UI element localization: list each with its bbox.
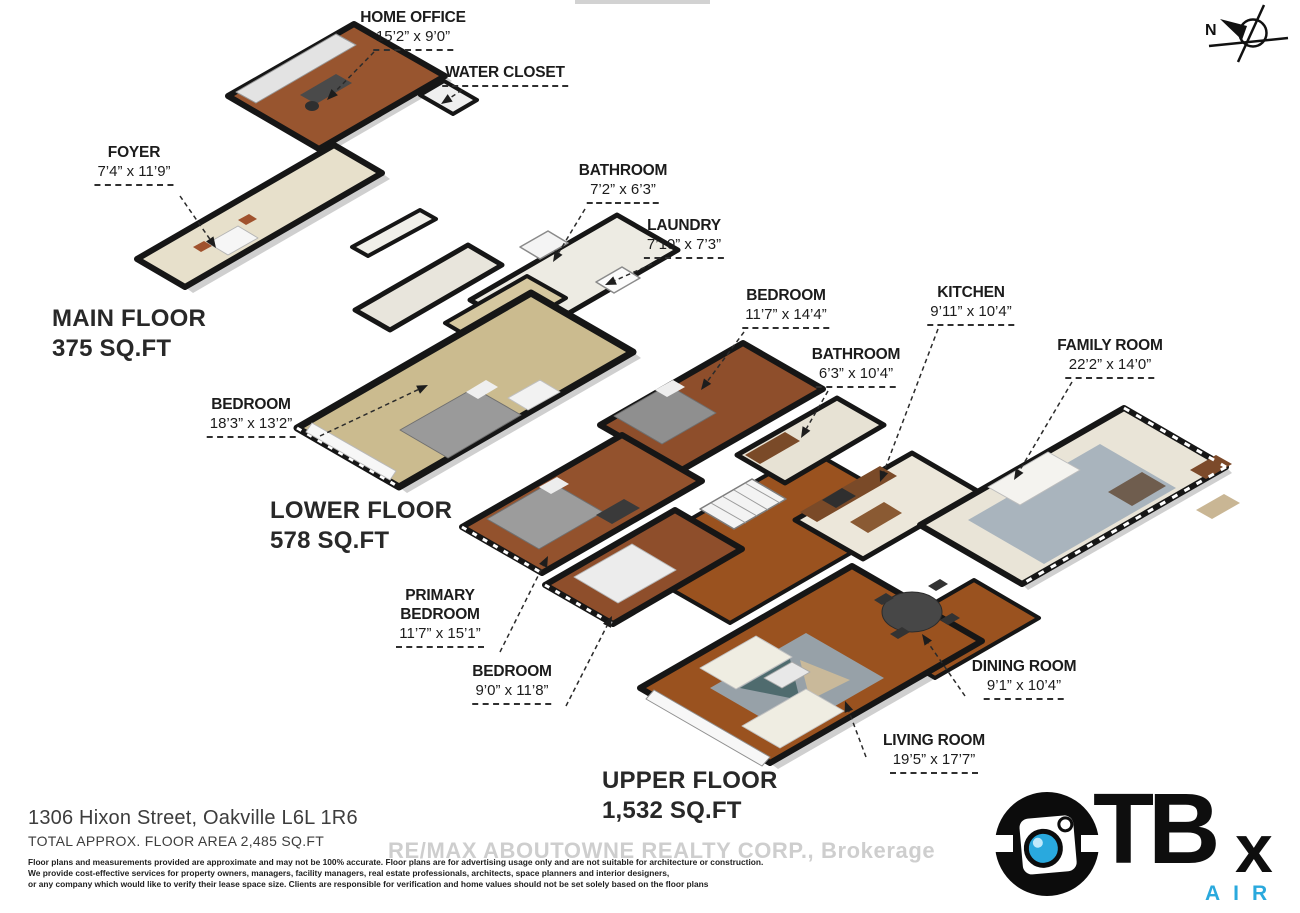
- room-label-water-closet: WATER CLOSET: [442, 63, 568, 87]
- room-dims-bathroom-lower: 7’2” x 6’3”: [587, 180, 659, 204]
- tbx-air-logo: TB x AIR: [993, 790, 1299, 910]
- foyer-room: [137, 145, 382, 287]
- room-name-laundry: LAUNDRY: [644, 216, 724, 235]
- property-address: 1306 Hixon Street, Oakville L6L 1R6: [28, 806, 763, 830]
- room-dims-dining-room: 9’1” x 10’4”: [984, 676, 1064, 700]
- room-dims-bedroom-lower: 18’3” x 13’2”: [207, 414, 296, 438]
- dining-chair-2: [928, 579, 948, 591]
- family-lounger: [1196, 494, 1240, 519]
- floorplan-page: MAIN FLOOR 375 SQ.FT LOWER FLOOR 578 SQ.…: [0, 0, 1300, 913]
- disclaimer-line-2: We provide cost-effective services for p…: [28, 868, 763, 879]
- logo-text-air: AIR: [1205, 882, 1280, 906]
- room-name-foyer: FOYER: [94, 143, 173, 162]
- room-dims-kitchen: 9’11” x 10’4”: [927, 302, 1014, 326]
- room-dims-home-office: 15’2” x 9’0”: [373, 27, 453, 51]
- room-label-home-office: HOME OFFICE15’2” x 9’0”: [360, 8, 465, 51]
- room-label-laundry: LAUNDRY7’10” x 7’3”: [644, 216, 724, 259]
- leader-line-primary-bedroom: [500, 566, 543, 652]
- room-name-kitchen: KITCHEN: [927, 283, 1014, 302]
- upper-floor-title-text: UPPER FLOOR: [602, 766, 778, 796]
- leader-line-bedroom-2: [566, 626, 607, 706]
- logo-text-x: x: [1235, 810, 1273, 888]
- main-floor-title: MAIN FLOOR 375 SQ.FT: [52, 304, 206, 364]
- room-name-bedroom-2: BEDROOM: [472, 662, 552, 681]
- lower-floor-area-text: 578 SQ.FT: [270, 526, 452, 556]
- disclaimer-text: Floor plans and measurements provided ar…: [28, 857, 763, 890]
- room-label-bedroom-2: BEDROOM9’0” x 11’8”: [472, 662, 552, 705]
- room-dims-bedroom-upper: 11’7” x 14’4”: [742, 305, 829, 329]
- room-name-home-office: HOME OFFICE: [360, 8, 465, 27]
- room-label-bathroom-lower: BATHROOM7’2” x 6’3”: [579, 161, 668, 204]
- room-dims-primary-bedroom: 11’7” x 15’1”: [396, 624, 483, 648]
- room-name-primary-bedroom: PRIMARY BEDROOM: [379, 586, 501, 624]
- camera-ring: [1058, 817, 1072, 831]
- room-name-dining-room: DINING ROOM: [972, 657, 1077, 676]
- room-dims-bathroom-upper: 6’3” x 10’4”: [816, 364, 896, 388]
- room-label-family-room: FAMILY ROOM22’2” x 14’0”: [1057, 336, 1162, 379]
- room-name-family-room: FAMILY ROOM: [1057, 336, 1162, 355]
- camera-lens: [1025, 830, 1062, 867]
- room-dims-family-room: 22’2” x 14’0”: [1066, 355, 1155, 379]
- room-label-foyer: FOYER7’4” x 11’9”: [94, 143, 173, 186]
- main-floor-area-text: 375 SQ.FT: [52, 334, 206, 364]
- camera-body-group: [1019, 815, 1078, 875]
- room-dims-laundry: 7’10” x 7’3”: [644, 235, 724, 259]
- lower-floor-title: LOWER FLOOR 578 SQ.FT: [270, 496, 452, 556]
- lower-floor-title-text: LOWER FLOOR: [270, 496, 452, 526]
- room-label-primary-bedroom: PRIMARY BEDROOM11’7” x 15’1”: [379, 586, 501, 648]
- north-compass: N: [1195, 2, 1300, 74]
- disclaimer-line-3: or any company which would like to verif…: [28, 879, 763, 890]
- lower-closet: [352, 210, 436, 256]
- room-dims-bedroom-2: 9’0” x 11’8”: [472, 681, 551, 705]
- total-floor-area: TOTAL APPROX. FLOOR AREA 2,485 SQ.FT: [28, 832, 763, 850]
- room-name-bedroom-lower: BEDROOM: [207, 395, 296, 414]
- top-gray-bar: [575, 0, 710, 4]
- disclaimer-line-1: Floor plans and measurements provided ar…: [28, 857, 763, 868]
- room-dims-living-room: 19’5” x 17’7”: [890, 750, 979, 774]
- logo-slit-left: [993, 835, 1013, 852]
- logo-text-tb: TB: [1093, 772, 1214, 887]
- room-dims-foyer: 7’4” x 11’9”: [94, 162, 173, 186]
- room-label-bathroom-upper: BATHROOM6’3” x 10’4”: [812, 345, 901, 388]
- room-name-water-closet: WATER CLOSET: [442, 63, 568, 87]
- room-name-bedroom-upper: BEDROOM: [742, 286, 829, 305]
- home-office-chair: [305, 101, 319, 111]
- footer-block: 1306 Hixon Street, Oakville L6L 1R6 TOTA…: [28, 806, 763, 890]
- room-label-kitchen: KITCHEN9’11” x 10’4”: [927, 283, 1014, 326]
- camera-logo-icon: [993, 790, 1101, 898]
- room-label-bedroom-lower: BEDROOM18’3” x 13’2”: [207, 395, 296, 438]
- room-label-living-room: LIVING ROOM19’5” x 17’7”: [883, 731, 985, 774]
- compass-north-arrow: [1220, 19, 1247, 40]
- room-label-bedroom-upper: BEDROOM11’7” x 14’4”: [742, 286, 829, 329]
- room-label-dining-room: DINING ROOM9’1” x 10’4”: [972, 657, 1077, 700]
- room-name-bathroom-lower: BATHROOM: [579, 161, 668, 180]
- compass-n-label: N: [1205, 22, 1217, 39]
- main-floor-title-text: MAIN FLOOR: [52, 304, 206, 334]
- room-name-living-room: LIVING ROOM: [883, 731, 985, 750]
- room-name-bathroom-upper: BATHROOM: [812, 345, 901, 364]
